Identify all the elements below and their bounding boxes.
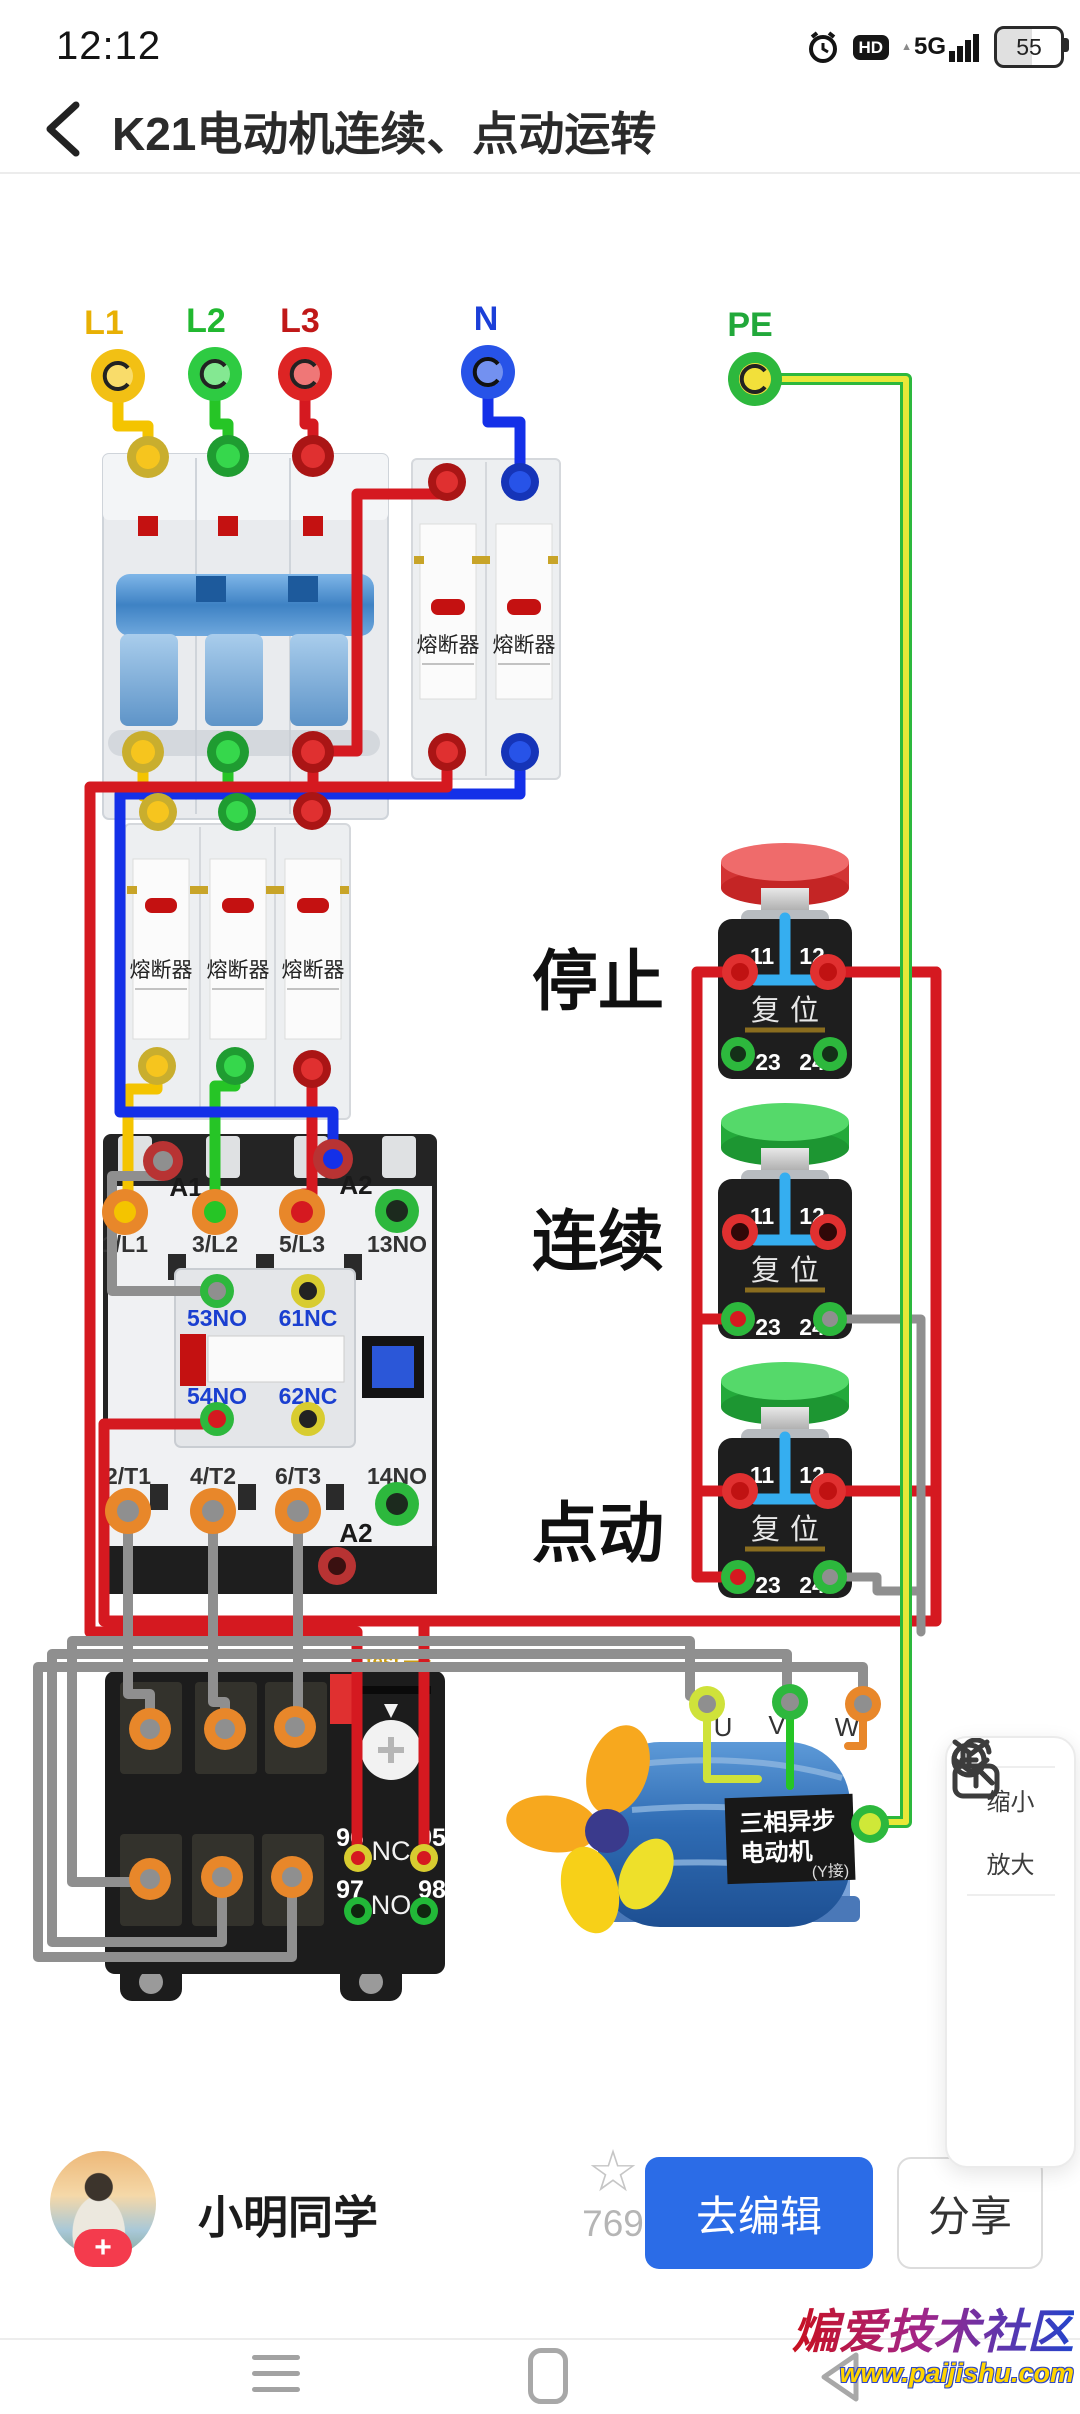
thermal-relay[interactable]: test 96 NC 95 97 NO 98	[105, 1652, 446, 2001]
jog-23-label: 23	[755, 1572, 781, 1598]
fuse-label: 熔断器	[207, 959, 270, 982]
system-nav-bar	[0, 2340, 1080, 2414]
contactor-button[interactable]	[372, 1346, 414, 1388]
contactor-a2b-label: A2	[339, 1518, 372, 1548]
source-l1-label: L1	[84, 304, 124, 342]
fuse-terminal	[293, 792, 331, 830]
avatar[interactable]: +	[50, 2151, 156, 2257]
source-pe-label: PE	[727, 306, 772, 344]
stop-label: 停止	[532, 944, 664, 1018]
follow-plus-badge[interactable]: +	[74, 2229, 132, 2267]
fuse-terminal	[501, 733, 539, 771]
network-indicator: ▲ 5G	[901, 31, 982, 63]
fuse-terminal	[428, 463, 466, 501]
hd-badge: HD	[853, 35, 890, 60]
author-bar: + 小明同学 ☆ 769 去编辑 分享	[0, 2135, 1080, 2338]
fuse-terminal	[428, 733, 466, 771]
motor-label-line3: (Y接)	[812, 1862, 850, 1881]
stop-23-label: 23	[755, 1049, 781, 1075]
motor-label-line2: 电动机	[740, 1838, 813, 1867]
contactor-13no-label: 13NO	[367, 1231, 427, 1257]
motor-terminal-v	[772, 1684, 808, 1720]
fuse-terminal	[293, 1050, 331, 1088]
back-button[interactable]	[34, 98, 82, 158]
fuse-group-2p[interactable]: 熔断器 熔断器	[412, 459, 560, 779]
username: 小明同学	[198, 2181, 378, 2246]
contactor-terminal-53no	[200, 1274, 234, 1308]
run-terminal-23	[721, 1302, 755, 1336]
contactor-terminal-1l1	[102, 1189, 148, 1235]
contactor-terminal-4t2	[190, 1488, 236, 1534]
wire-t3[interactable]	[295, 1514, 298, 1725]
jog-label: 点动	[532, 1496, 664, 1570]
signal-bars-icon	[948, 31, 982, 63]
thermal-terminal-96	[344, 1844, 372, 1872]
terminal-L2	[188, 347, 242, 401]
share-button[interactable]: 分享	[897, 2157, 1043, 2269]
page-title: K21电动机连续、点动运转	[112, 98, 656, 164]
jog-reset-label: 复位	[751, 1513, 829, 1546]
fuse-label: 熔断器	[282, 959, 345, 982]
contactor-terminal-2t1	[105, 1488, 151, 1534]
breaker-indicator	[138, 516, 158, 536]
run-label: 连续	[532, 1204, 664, 1278]
lock-button[interactable]	[947, 1896, 1074, 1924]
header: K21电动机连续、点动运转	[0, 88, 1080, 172]
thermal-no-label: NO	[371, 1890, 412, 1920]
source-l3-label: L3	[280, 302, 320, 340]
fuse-terminal	[501, 463, 539, 501]
fuse-terminal	[216, 1047, 254, 1085]
motor-terminal-pe	[851, 1805, 889, 1843]
status-bar: 12:12 HD ▲ 5G 55	[0, 0, 1080, 88]
wiring-canvas[interactable]: 熔断器 熔断器 熔断器 熔断器 熔断器	[0, 174, 1080, 2135]
jog-terminal-24	[813, 1560, 847, 1594]
terminal-L1	[91, 349, 145, 403]
contactor-terminal-5l3	[279, 1189, 325, 1235]
fuse-label: 熔断器	[493, 634, 556, 657]
thermal-terminal	[204, 1708, 246, 1750]
thermal-terminal	[271, 1856, 313, 1898]
fuse-terminal	[218, 793, 256, 831]
contactor-6t3-label: 6/T3	[275, 1463, 321, 1489]
alarm-icon	[805, 29, 841, 65]
contactor-terminal-a2	[313, 1139, 353, 1179]
jog-terminal-23	[721, 1560, 755, 1594]
fuse-label: 熔断器	[130, 959, 193, 982]
clock-time: 12:12	[56, 24, 161, 69]
contactor-terminal-62nc	[291, 1402, 325, 1436]
stop-terminal-24	[813, 1037, 847, 1071]
contactor-terminal-6t3	[275, 1488, 321, 1534]
contactor-flag	[180, 1334, 206, 1386]
stop-terminal-12	[810, 954, 846, 990]
motor[interactable]: 三相异步 电动机 (Y接) U V W	[503, 1710, 860, 1939]
contactor-terminal-a1	[143, 1141, 183, 1181]
network-type: 5G	[914, 33, 946, 61]
fuse-terminal	[139, 793, 177, 831]
breaker-terminal	[207, 435, 249, 477]
breaker-indicator	[303, 516, 323, 536]
contactor-terminal-a2b	[318, 1547, 356, 1585]
breaker-terminal	[207, 731, 249, 773]
recents-button[interactable]	[246, 2354, 294, 2393]
battery-indicator: 55	[994, 26, 1064, 68]
app-screen: 12:12 HD ▲ 5G 55	[0, 0, 1080, 2414]
run-terminal-24	[813, 1302, 847, 1336]
zoom-in-label: 放大	[987, 1845, 1035, 1880]
wire-pe-inner[interactable]	[762, 379, 906, 1822]
contactor-terminal-14no	[375, 1482, 419, 1526]
contactor-61nc-label: 61NC	[279, 1305, 338, 1331]
breaker-indicator	[218, 516, 238, 536]
thermal-terminal-97	[344, 1897, 372, 1925]
terminal-L3	[278, 347, 332, 401]
battery-percent: 55	[1016, 34, 1042, 61]
run-terminal-11	[722, 1214, 758, 1250]
unlock-icon	[947, 1738, 1005, 1800]
edit-button[interactable]: 去编辑	[645, 2157, 873, 2269]
contactor-terminal-3l2	[192, 1189, 238, 1235]
zoom-in-button[interactable]: 放大	[947, 1831, 1074, 1894]
thermal-terminal	[129, 1708, 171, 1750]
contactor-2t1-label: 2/T1	[105, 1463, 151, 1489]
wire-pe-outer[interactable]	[762, 379, 906, 1822]
breaker-terminal	[292, 435, 334, 477]
contactor-4t2-label: 4/T2	[190, 1463, 236, 1489]
contactor-53no-label: 53NO	[187, 1305, 247, 1331]
motor-terminal-w	[845, 1686, 881, 1722]
breaker-terminal	[122, 731, 164, 773]
breaker-terminal	[127, 436, 169, 478]
motor-terminal-u	[689, 1686, 725, 1722]
contactor-terminal-13no	[375, 1189, 419, 1233]
canvas-controls-panel: 缩小 放大	[945, 1736, 1076, 2168]
breaker-handle[interactable]	[116, 574, 374, 726]
thermal-terminal	[201, 1856, 243, 1898]
jog-terminal-11	[722, 1473, 758, 1509]
terminal-N	[461, 345, 515, 399]
run-reset-label: 复位	[751, 1254, 829, 1287]
thermal-terminal-98	[410, 1897, 438, 1925]
thermal-terminal	[274, 1706, 316, 1748]
source-l2-label: L2	[186, 302, 226, 340]
contactor-terminal-61nc	[291, 1274, 325, 1308]
source-n-label: N	[474, 300, 499, 338]
thermal-terminal-95	[410, 1844, 438, 1872]
up-arrow-icon: ▲	[901, 42, 912, 52]
jog-terminal-12	[810, 1473, 846, 1509]
contactor-terminal-54no	[200, 1402, 234, 1436]
stop-reset-label: 复位	[751, 994, 829, 1027]
stop-terminal-23	[721, 1037, 755, 1071]
run-terminal-12	[810, 1214, 846, 1250]
stop-terminal-11	[722, 954, 758, 990]
motor-label-line1: 三相异步	[739, 1807, 836, 1837]
breaker-terminal	[292, 731, 334, 773]
run-23-label: 23	[755, 1314, 781, 1340]
back-chevron-icon	[40, 99, 84, 159]
terminal-PE	[728, 352, 782, 406]
fuse-label: 熔断器	[417, 634, 480, 657]
back-triangle-icon	[812, 2349, 866, 2405]
home-button[interactable]	[528, 2348, 568, 2404]
nav-back-button[interactable]	[806, 2348, 872, 2409]
thermal-terminal	[129, 1858, 171, 1900]
fuse-terminal	[138, 1047, 176, 1085]
thermal-nc-label: NC	[372, 1836, 411, 1866]
